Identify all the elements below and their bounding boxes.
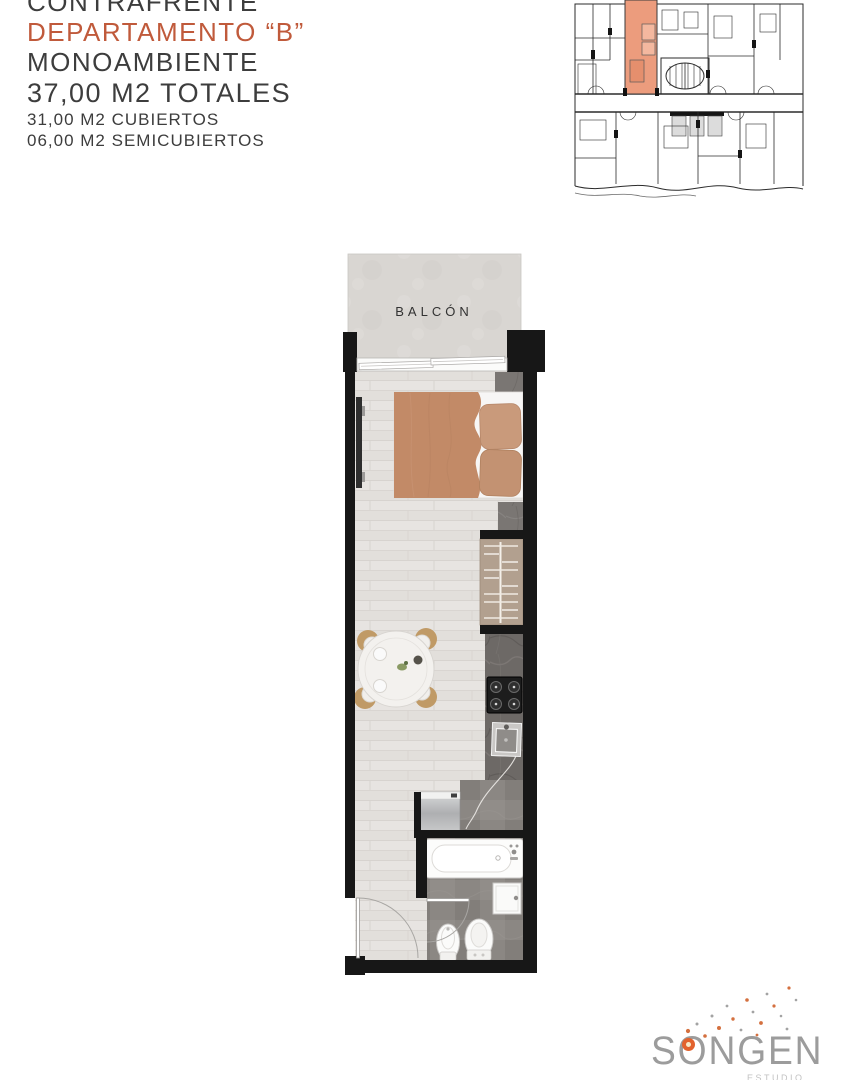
brand-name: SONGEN — [651, 1029, 823, 1074]
duvet — [394, 392, 481, 498]
unit-label: DEPARTAMENTO “B” — [27, 17, 305, 47]
bidet — [437, 924, 460, 961]
balcony: BALCÓN — [348, 254, 521, 359]
covered-area-label: 31,00 M2 CUBIERTOS — [27, 109, 305, 130]
pillow — [479, 449, 522, 496]
brand-logo: SONGEN ESTUDIO — [635, 983, 845, 1080]
semicovered-area-label: 06,00 M2 SEMICUBIERTOS — [27, 130, 305, 151]
bathtub — [426, 839, 523, 878]
key-plan-stair-core — [661, 58, 709, 94]
dining-table — [358, 631, 434, 707]
layout-label: MONOAMBIENTE — [27, 47, 305, 77]
sliding-door — [357, 356, 507, 371]
vanity-sink — [493, 883, 521, 914]
total-area-label: 37,00 M2 TOTALES — [27, 77, 305, 109]
key-plan — [558, 0, 808, 212]
tub-faucet — [512, 850, 517, 855]
balcony-label: BALCÓN — [395, 304, 472, 319]
brand-subtitle: ESTUDIO — [747, 1073, 805, 1080]
bed — [394, 392, 523, 498]
key-plan-cut-line — [575, 185, 803, 197]
logo-o-dot-icon — [682, 1038, 695, 1051]
refrigerator — [420, 792, 460, 831]
page: CONTRAFRENTE DEPARTAMENTO “B” MONOAMBIEN… — [0, 0, 848, 1080]
kitchen-sink — [491, 723, 521, 757]
unit-spec-header: CONTRAFRENTE DEPARTAMENTO “B” MONOAMBIEN… — [27, 0, 305, 151]
vanity-faucet — [514, 896, 518, 900]
dining-set — [354, 628, 437, 709]
orientation-label: CONTRAFRENTE — [27, 0, 305, 17]
pillow — [479, 403, 522, 449]
key-plan-highlighted-unit — [623, 0, 659, 96]
toilet — [465, 919, 493, 960]
cooktop — [487, 677, 522, 713]
wardrobe — [480, 539, 523, 625]
floor-plan: BALCÓN — [330, 240, 550, 980]
